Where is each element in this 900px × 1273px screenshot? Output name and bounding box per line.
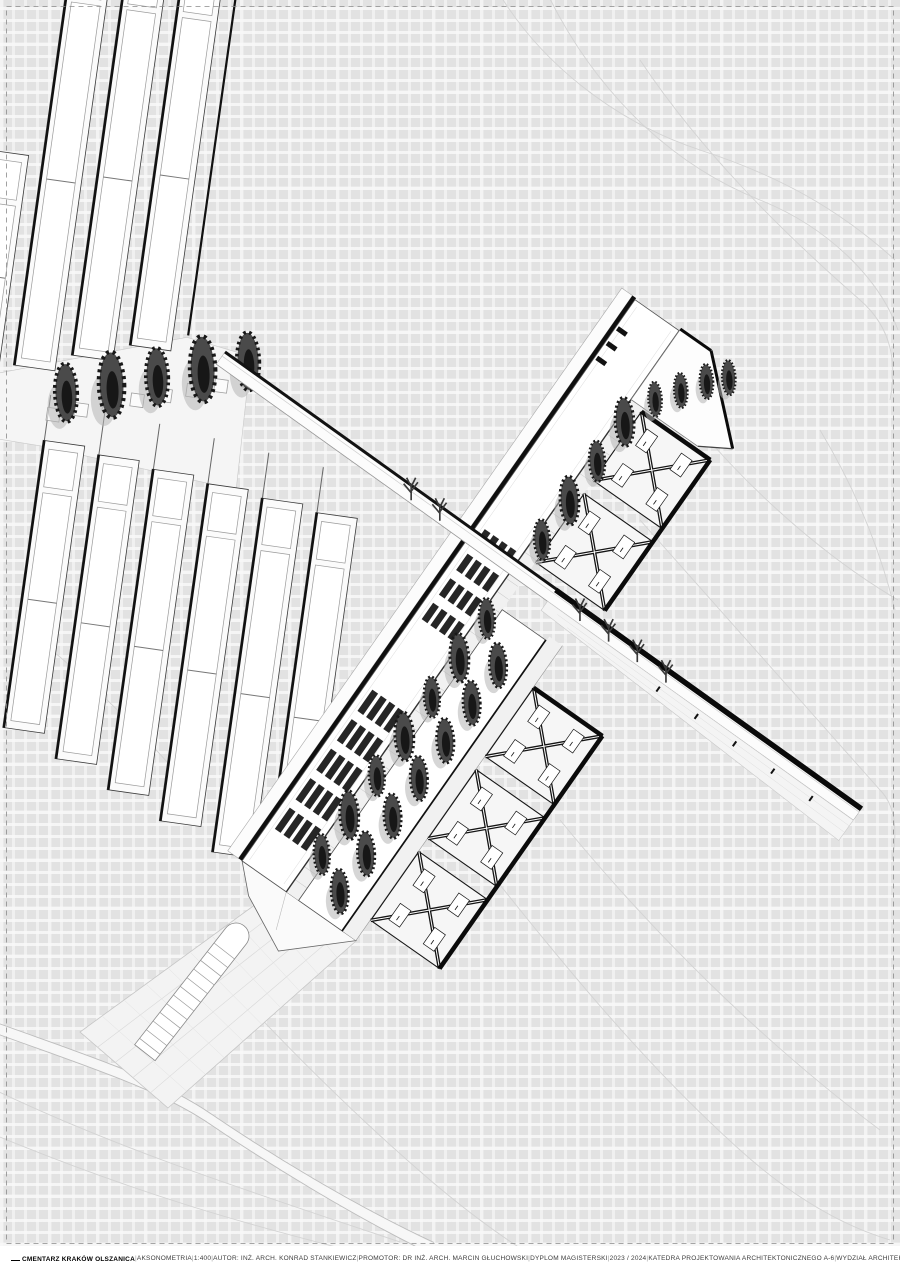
academic-year: 2023 / 2024 — [610, 1256, 647, 1263]
presentation-board: CMENTARZ KRAKÓW OLSZANICA | AKSONOMETRIA… — [0, 0, 900, 1273]
title-underline-mark — [11, 1255, 20, 1261]
project-title: CMENTARZ KRAKÓW OLSZANICA — [11, 1255, 135, 1264]
drawing-type: AKSONOMETRIA — [137, 1256, 192, 1263]
thesis-type: DYPLOM MAGISTERSKI — [530, 1256, 608, 1263]
axonometric-drawing — [0, 0, 900, 1246]
title-block: CMENTARZ KRAKÓW OLSZANICA | AKSONOMETRIA… — [0, 1246, 900, 1273]
faculty: WYDZIAŁ ARCHITEKTURY POLITECHNIKI KRAKOW… — [836, 1256, 900, 1263]
main-cemetery-building — [197, 283, 822, 1032]
department: KATEDRA PROJEKTOWANIA ARCHITEKTONICZNEGO… — [648, 1256, 834, 1263]
promoter: PROMOTOR: DR INŻ. ARCH. MARCIN GŁUCHOWSK… — [359, 1256, 529, 1263]
drawing-scale: 1:400 — [194, 1256, 211, 1263]
author: AUTOR: INŻ. ARCH. KONRAD STANKIEWICZ — [213, 1256, 356, 1263]
